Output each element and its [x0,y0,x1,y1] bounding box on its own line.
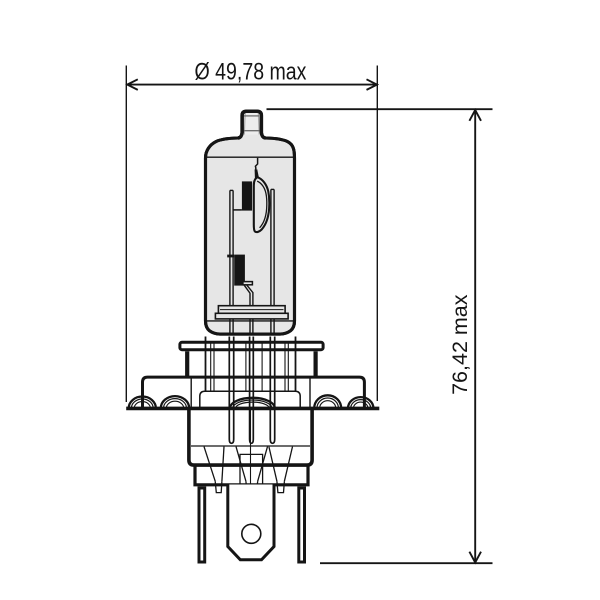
svg-text:Ø 49,78 max: Ø 49,78 max [195,57,307,84]
svg-text:76,42 max: 76,42 max [448,294,472,395]
